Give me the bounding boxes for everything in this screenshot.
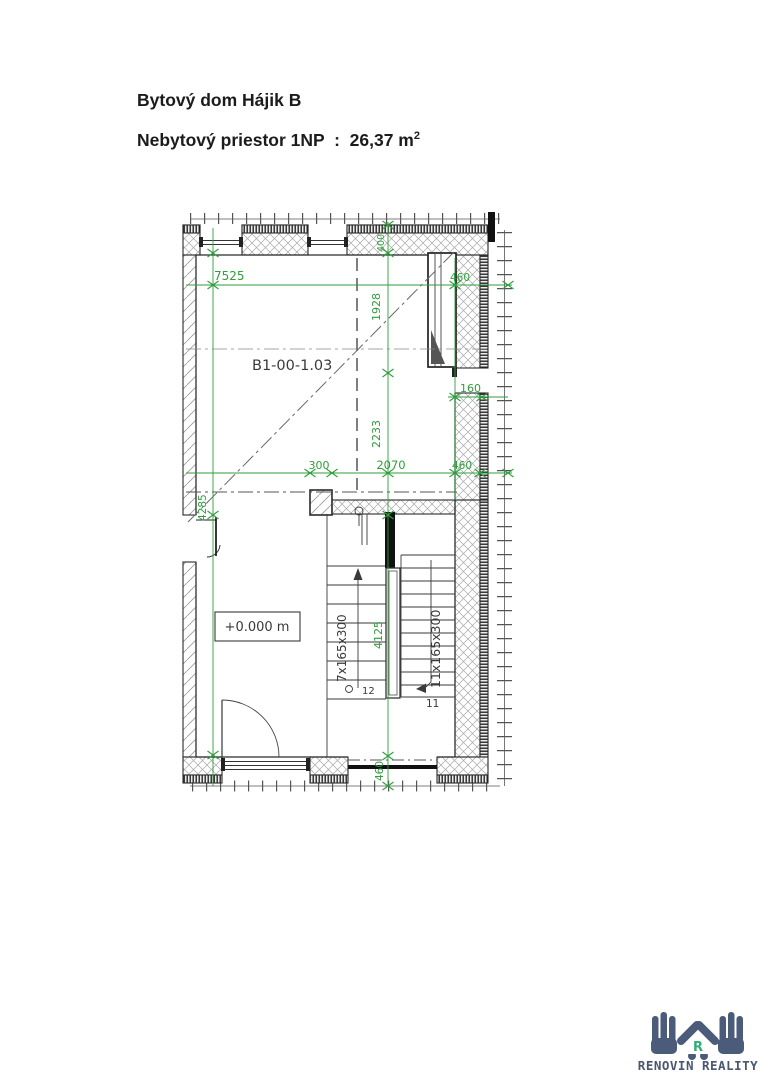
level-marker: +0.000 m xyxy=(215,612,300,641)
logo-monogram: R xyxy=(693,1040,703,1055)
stair-left-label: 7x165x300 xyxy=(335,614,349,682)
document-page: Bytový dom Hájik B Nebytový priestor 1NP… xyxy=(0,0,763,1080)
dim-door-right: 160 xyxy=(460,382,481,395)
dim-depth-mid: 2233 xyxy=(370,420,383,448)
dim-depth-lower: 4285 xyxy=(197,494,209,521)
dim-width-top: 7525 xyxy=(214,269,245,283)
step-number-right: 11 xyxy=(426,698,439,710)
brand-name: RENOVIN REALITY xyxy=(628,1058,763,1073)
hands-house-icon: R xyxy=(651,1012,744,1060)
dim-depth-upper: 1928 xyxy=(370,293,383,321)
page-subtitle: Nebytový priestor 1NP : 26,37 m2 xyxy=(137,130,420,151)
dim-wall-top: 400 xyxy=(376,234,387,252)
room-label: B1-00-1.03 xyxy=(252,358,332,374)
subtitle-superscript: 2 xyxy=(414,130,420,142)
dim-opening-mid: 2070 xyxy=(376,458,405,472)
floor-plan: B1-00-1.03 +0.000 m 7x165x300 11x165x300… xyxy=(180,205,520,805)
entry-door xyxy=(222,700,279,757)
section-marker xyxy=(488,212,495,242)
company-logo: R xyxy=(632,1008,762,1064)
dim-wall-right-top: 460 xyxy=(450,272,470,284)
level-label: +0.000 m xyxy=(225,620,290,635)
dim-column: 300 xyxy=(309,459,330,472)
step-number-left: 12 xyxy=(362,686,375,697)
page-title: Bytový dom Hájik B xyxy=(137,90,301,111)
subtitle-text: Nebytový priestor 1NP : 26,37 m xyxy=(137,130,414,150)
left-door xyxy=(196,517,220,557)
dim-wall-right-mid: 460 xyxy=(452,460,472,472)
threshold-bar xyxy=(348,765,437,769)
balcony-door xyxy=(428,253,456,367)
dim-stair-run: 4125 xyxy=(372,621,385,649)
dim-wall-bottom: 460 xyxy=(374,761,386,781)
stair-right-label: 11x165x300 xyxy=(428,610,443,688)
